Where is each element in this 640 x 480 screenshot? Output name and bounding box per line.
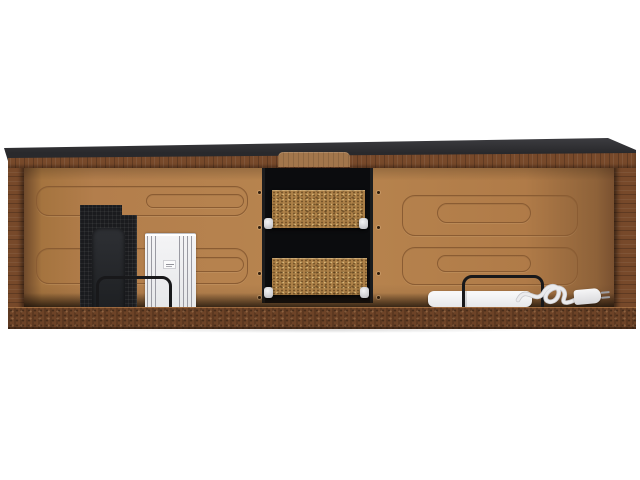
screw: [258, 226, 261, 229]
screw: [258, 296, 261, 299]
screw: [377, 191, 380, 194]
parts-sticker: [163, 260, 176, 269]
screw: [377, 272, 380, 275]
screw: [258, 191, 261, 194]
emboss-pill: [146, 194, 244, 208]
drawer-roller: [264, 218, 273, 229]
drawer-back-upper: [272, 190, 365, 228]
bottom-front-rail: [8, 307, 636, 329]
left-side-panel: [8, 164, 24, 312]
power-plug: [573, 288, 601, 305]
drawer-roller: [359, 218, 368, 229]
screw: [377, 226, 380, 229]
cable-access-notch: [278, 152, 350, 167]
screw: [258, 272, 261, 275]
panel-stack-edge-lines: [179, 236, 193, 311]
product-photo: [0, 0, 640, 480]
emboss-pill: [437, 203, 531, 223]
emboss-pill: [437, 255, 531, 272]
drawer-roller: [360, 287, 369, 298]
drawer-back-lower: [272, 258, 367, 295]
drawer-roller: [264, 287, 273, 298]
screw: [377, 296, 380, 299]
